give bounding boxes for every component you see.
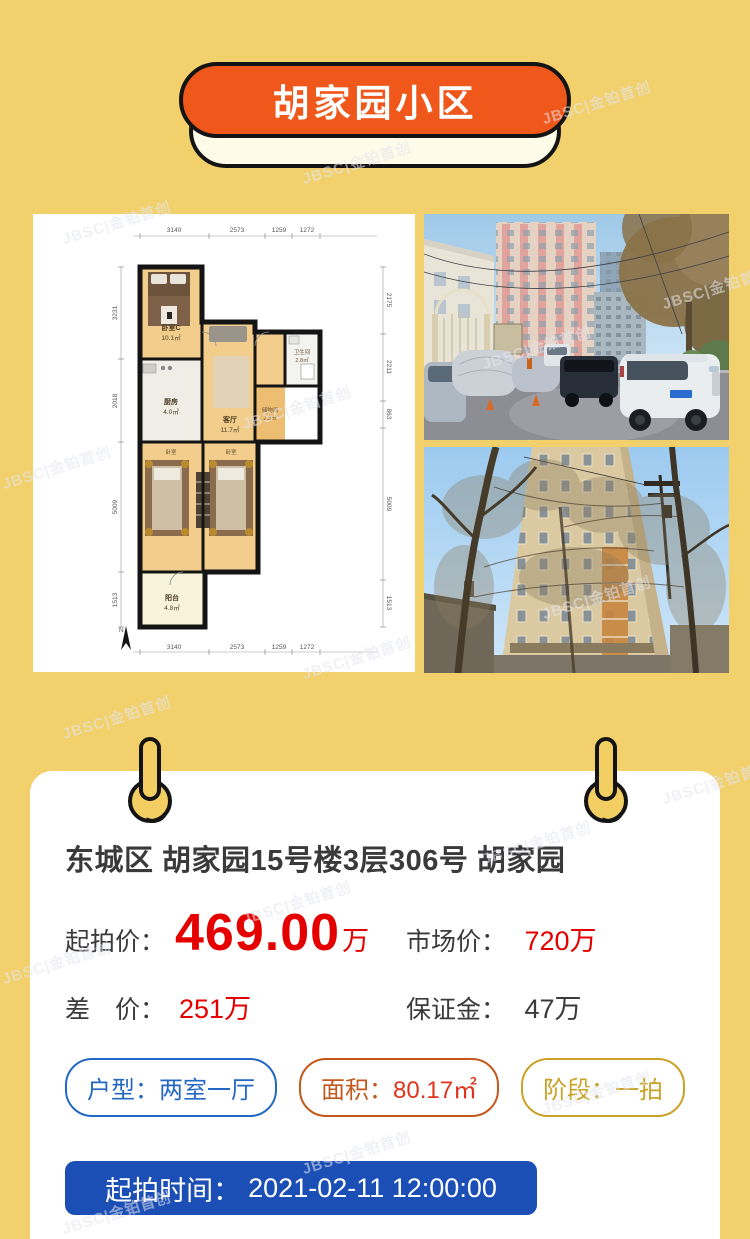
diff-price-label: 差 价：	[65, 990, 165, 1026]
dim-top-2: 2573	[230, 227, 245, 234]
secondary-price-row: 差 价： 251万 保证金： 47万	[65, 987, 685, 1026]
start-price-unit: 万	[342, 919, 369, 958]
dim-left-1: 3231	[112, 305, 119, 320]
street-photo[interactable]	[424, 214, 729, 440]
room-bedrooma-name: 卧室	[165, 448, 177, 456]
floorplan-drawing: 3140 2573 1259 1272 3140 2573 1259 1272 …	[33, 214, 415, 672]
layout-tag: 户型：两室一厅	[65, 1058, 277, 1117]
diff-price-value: 251万	[179, 987, 251, 1026]
dim-right-4: 5009	[385, 497, 392, 512]
bed-illustration-bedroom-c	[148, 272, 190, 326]
dim-right-1: 2175	[385, 293, 392, 308]
street-photo-illustration	[424, 214, 729, 440]
dim-top-4: 1272	[300, 227, 315, 234]
start-price-label: 起拍价：	[65, 922, 165, 958]
media-gallery: 3140 2573 1259 1272 3140 2573 1259 1272 …	[33, 214, 729, 673]
stage-tag-value: 一拍	[615, 1077, 663, 1104]
building-photo[interactable]	[424, 447, 729, 673]
room-balcony-area: 4.8㎡	[164, 603, 180, 612]
dim-right-2: 2211	[385, 360, 392, 374]
dim-left-3: 5009	[112, 499, 119, 514]
layout-tag-label: 户型：	[87, 1077, 159, 1104]
price-row: 起拍价： 469.00 万 市场价： 720万	[65, 903, 685, 963]
market-price-label: 市场价：	[406, 928, 506, 956]
dim-bottom-2: 2573	[230, 644, 245, 651]
room-living-area: 11.7㎡	[221, 425, 240, 434]
dim-bottom-3: 1259	[272, 644, 287, 651]
dim-right-3: 863	[385, 409, 392, 420]
dim-top-3: 1259	[272, 227, 287, 234]
stage-tag: 阶段：一拍	[521, 1058, 685, 1117]
tags-row: 户型：两室一厅 面积：80.17㎡ 阶段：一拍	[65, 1058, 685, 1117]
svg-text:N: N	[119, 627, 124, 634]
community-banner: 胡家园小区	[179, 62, 571, 168]
room-kitchen-area: 4.0㎡	[163, 407, 179, 416]
dim-bottom-1: 3140	[167, 644, 182, 651]
building-photo-illustration	[424, 447, 729, 673]
stage-tag-label: 阶段：	[543, 1077, 615, 1104]
deposit-label: 保证金：	[406, 996, 506, 1024]
room-storage-name: 储物间	[262, 406, 279, 414]
dim-right-5: 1513	[385, 596, 392, 611]
area-tag: 面积：80.17㎡	[299, 1058, 499, 1117]
dim-top-1: 3140	[167, 227, 182, 234]
pin-icon	[126, 737, 174, 823]
floorplan-image[interactable]: 3140 2573 1259 1272 3140 2573 1259 1272 …	[33, 214, 415, 672]
room-bedroomc-area: 10.1㎡	[161, 333, 181, 342]
room-bath-area: 2.8㎡	[295, 356, 309, 364]
area-tag-label: 面积：	[321, 1077, 393, 1104]
layout-tag-value: 两室一厅	[159, 1077, 255, 1104]
deposit-value: 47万	[524, 994, 581, 1024]
room-bath-name: 卫生间	[294, 348, 311, 356]
market-price-value: 720万	[524, 926, 596, 956]
bed-illustration-bedroom-a	[145, 460, 189, 536]
area-tag-value: 80.17㎡	[393, 1077, 477, 1104]
dim-bottom-4: 1272	[300, 644, 315, 651]
room-bedroomb-name: 卧室	[225, 448, 237, 456]
start-price-value: 469.00	[175, 903, 340, 963]
auction-time-label: 起拍时间：	[105, 1169, 240, 1208]
dim-left-4: 1513	[112, 592, 119, 607]
pin-icon	[582, 737, 630, 823]
auction-time-value: 2021-02-11 12:00:00	[248, 1173, 497, 1204]
dim-left-2: 2018	[112, 393, 119, 408]
bed-illustration-bedroom-b	[209, 460, 253, 536]
room-balcony-name: 阳台	[165, 593, 179, 602]
listing-title: 东城区 胡家园15号楼3层306号 胡家园	[65, 837, 685, 879]
room-storage-area: 2.3㎡	[263, 414, 277, 422]
photo-column	[424, 214, 729, 673]
listing-card: 东城区 胡家园15号楼3层306号 胡家园 起拍价： 469.00 万 市场价：…	[30, 771, 720, 1239]
room-kitchen-name: 厨房	[164, 397, 178, 406]
sofa-illustration-living	[209, 326, 249, 408]
auction-time-button[interactable]: 起拍时间： 2021-02-11 12:00:00	[65, 1161, 537, 1215]
compass-icon: N	[119, 626, 131, 650]
room-bedroomc-name: 卧室C	[161, 323, 180, 332]
room-living-name: 客厅	[222, 415, 237, 424]
community-name: 胡家园小区	[179, 62, 571, 138]
